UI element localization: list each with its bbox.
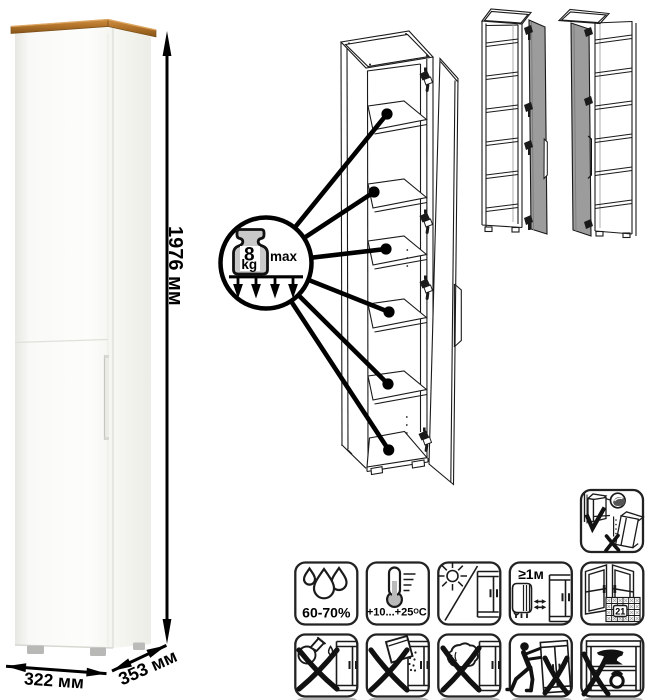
svg-text:kg: kg xyxy=(241,257,257,272)
svg-text:60-70%: 60-70% xyxy=(302,605,351,621)
svg-text:21: 21 xyxy=(615,606,625,616)
svg-text:≥1м: ≥1м xyxy=(518,566,544,582)
svg-text:max: max xyxy=(270,249,298,264)
svg-text:322 мм: 322 мм xyxy=(23,668,84,692)
svg-text:1976 мм: 1976 мм xyxy=(164,226,186,306)
